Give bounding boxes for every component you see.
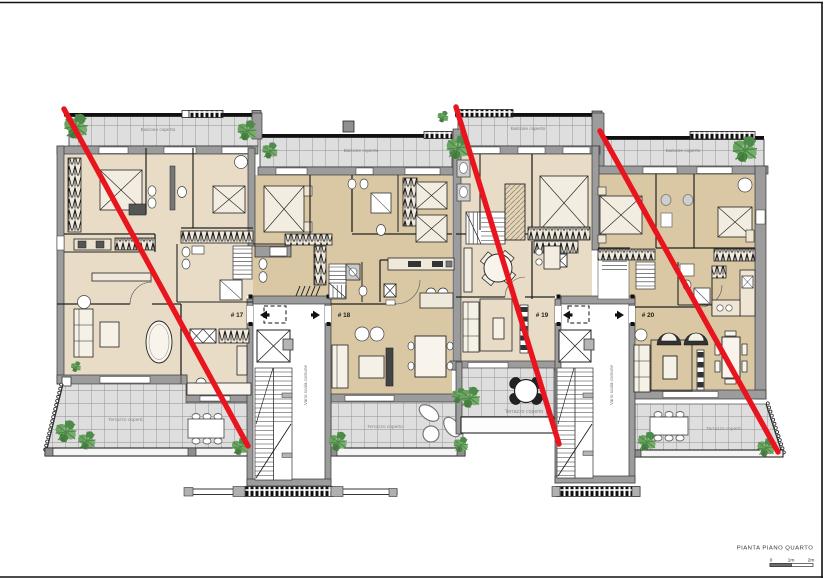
svg-text:# 19: # 19 [536, 312, 549, 319]
svg-text:Terrazzo coperto: Terrazzo coperto [505, 409, 544, 415]
svg-text:1m: 1m [788, 558, 795, 564]
svg-text:Balcone coperto: Balcone coperto [141, 127, 176, 133]
svg-text:Terrazzo coperto: Terrazzo coperto [706, 426, 742, 432]
svg-text:Terrazzo coperto: Terrazzo coperto [108, 417, 144, 423]
svg-text:Balcone coperto: Balcone coperto [344, 148, 379, 154]
svg-text:Vano scala comune: Vano scala comune [609, 365, 614, 405]
svg-text:Balcone coperto: Balcone coperto [511, 126, 546, 132]
svg-text:Terrazzo coperto: Terrazzo coperto [367, 424, 403, 430]
svg-text:Vano scala comune: Vano scala comune [303, 365, 308, 405]
svg-text:PIANTA PIANO QUARTO: PIANTA PIANO QUARTO [737, 546, 814, 552]
svg-text:0: 0 [770, 558, 773, 564]
svg-text:Balcone coperto: Balcone coperto [666, 148, 701, 154]
svg-text:2m: 2m [808, 558, 815, 564]
svg-text:# 17: # 17 [231, 312, 244, 319]
svg-text:# 20: # 20 [642, 312, 655, 319]
svg-text:# 18: # 18 [338, 312, 351, 319]
